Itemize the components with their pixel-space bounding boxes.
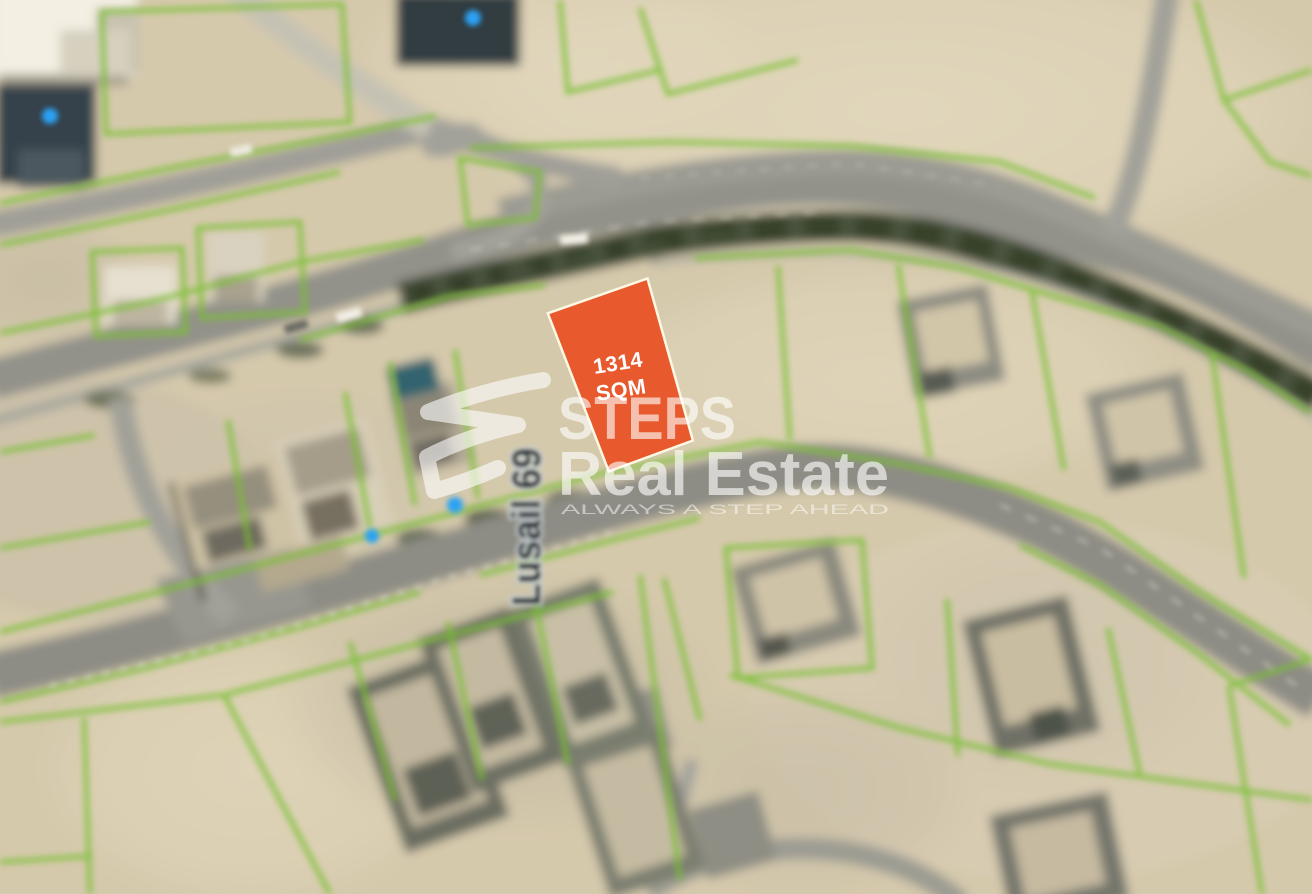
svg-text:Lusail 69: Lusail 69 [505,448,549,606]
svg-text:Real Estate: Real Estate [558,440,889,509]
svg-text:ALWAYS A STEP AHEAD: ALWAYS A STEP AHEAD [561,501,889,517]
